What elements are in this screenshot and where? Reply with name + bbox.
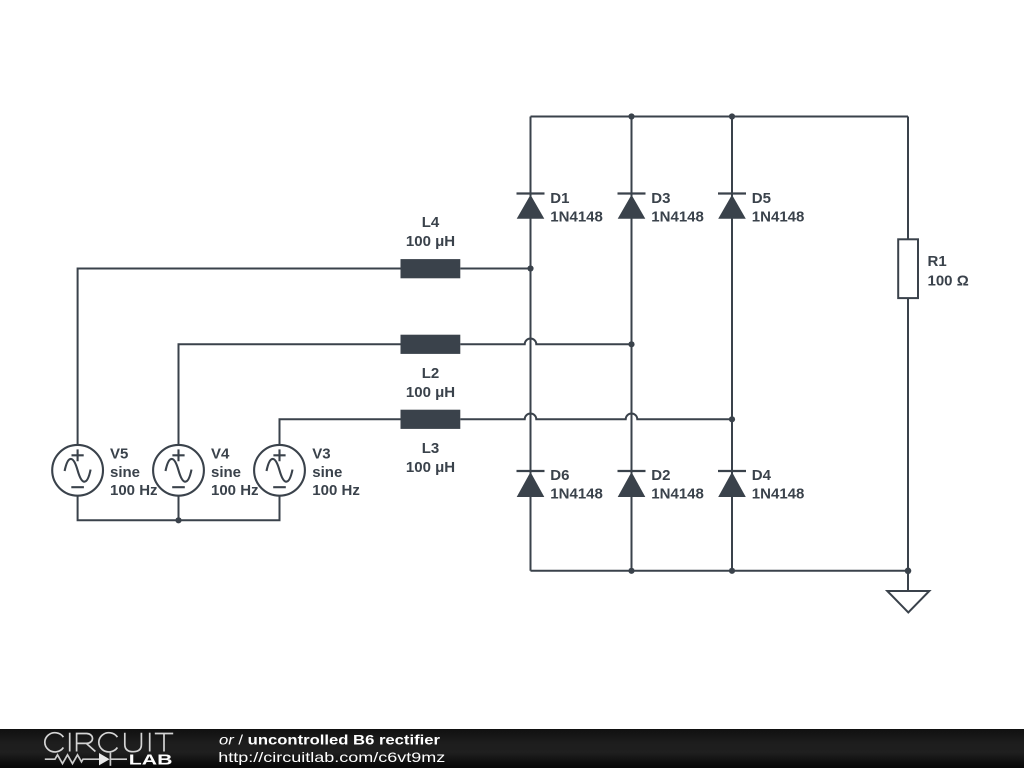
svg-text:L3: L3 [422,440,440,457]
svg-text:100 μH: 100 μH [406,459,455,476]
svg-text:100 μH: 100 μH [406,233,455,250]
svg-text:100 Hz: 100 Hz [110,482,158,499]
svg-text:1N4148: 1N4148 [752,486,805,503]
svg-text:1N4148: 1N4148 [550,209,603,226]
svg-text:V5: V5 [110,445,128,462]
svg-text:sine: sine [312,464,342,481]
svg-text:D2: D2 [651,467,670,484]
svg-text:V4: V4 [211,445,230,462]
svg-text:L4: L4 [422,214,440,231]
svg-text:R1: R1 [928,253,947,270]
svg-text:L2: L2 [422,365,440,382]
svg-text:LAB: LAB [129,752,173,768]
svg-text:1N4148: 1N4148 [651,486,704,503]
svg-text:D5: D5 [752,190,771,207]
svg-text:V3: V3 [312,445,330,462]
svg-text:100 Hz: 100 Hz [312,482,360,499]
svg-text:1N4148: 1N4148 [752,209,805,226]
svg-text:D4: D4 [752,467,772,484]
svg-text:D6: D6 [550,467,569,484]
svg-text:100 Ω: 100 Ω [928,272,969,289]
svg-text:1N4148: 1N4148 [550,486,603,503]
svg-text:sine: sine [110,464,140,481]
svg-text:100 μH: 100 μH [406,384,455,401]
svg-text:D3: D3 [651,190,670,207]
svg-text:or / uncontrolled B6 rectifier: or / uncontrolled B6 rectifier [219,731,441,747]
svg-text:D1: D1 [550,190,569,207]
svg-text:http://circuitlab.com/c6vt9mz: http://circuitlab.com/c6vt9mz [218,749,445,765]
svg-text:sine: sine [211,464,241,481]
svg-text:1N4148: 1N4148 [651,209,704,226]
svg-text:100 Hz: 100 Hz [211,482,259,499]
